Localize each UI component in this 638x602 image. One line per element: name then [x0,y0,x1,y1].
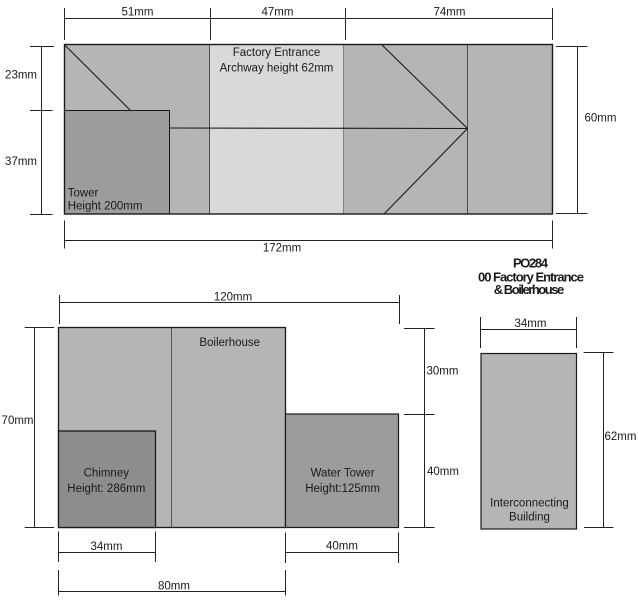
svg-text:Height 200mm: Height 200mm [68,201,143,213]
svg-text:Tower: Tower [68,188,99,200]
svg-text:Water Tower: Water Tower [311,467,375,479]
svg-text:37mm: 37mm [5,156,37,168]
svg-text:120mm: 120mm [214,292,252,304]
svg-text:Building: Building [509,512,550,524]
svg-text:Height:125mm: Height:125mm [305,483,380,495]
svg-text:& Boilerhouse: & Boilerhouse [494,282,565,297]
svg-text:Interconnecting: Interconnecting [490,498,569,510]
svg-text:60mm: 60mm [585,113,617,125]
svg-text:80mm: 80mm [158,581,190,593]
svg-text:47mm: 47mm [262,7,294,19]
svg-text:34mm: 34mm [515,318,547,330]
svg-text:30mm: 30mm [427,365,459,377]
svg-text:34mm: 34mm [91,541,123,553]
svg-text:70mm: 70mm [2,415,34,427]
svg-text:Factory Entrance: Factory Entrance [233,47,321,59]
svg-text:23mm: 23mm [5,70,37,82]
svg-text:Boilerhouse: Boilerhouse [199,337,260,349]
svg-text:40mm: 40mm [427,466,459,478]
svg-text:172mm: 172mm [263,243,301,255]
svg-text:40mm: 40mm [326,541,358,553]
svg-text:62mm: 62mm [605,431,637,443]
svg-text:Chimney: Chimney [84,468,130,480]
svg-text:PO284: PO284 [513,256,549,271]
svg-text:74mm: 74mm [434,7,466,19]
svg-text:Height: 286mm: Height: 286mm [67,483,145,495]
svg-text:51mm: 51mm [122,7,154,19]
svg-text:Archway height 62mm: Archway height 62mm [220,63,334,75]
